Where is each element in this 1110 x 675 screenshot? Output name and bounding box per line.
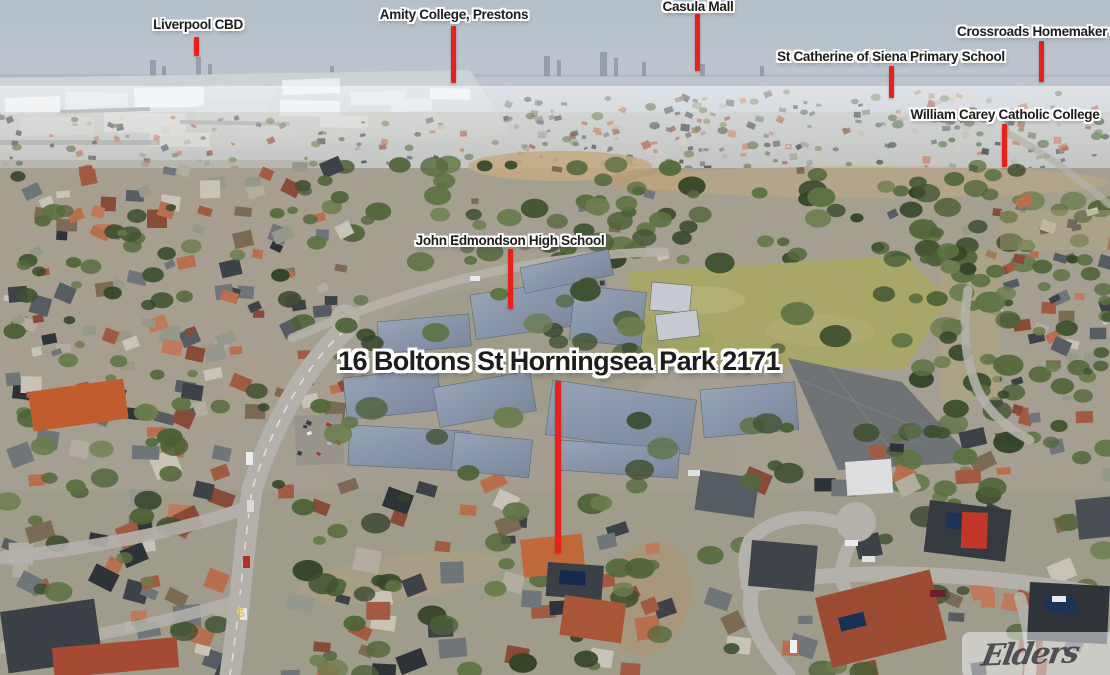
landmark-john-edmondson-high-school: John Edmondson High School — [416, 233, 605, 248]
pointer-line-crossroads-homemaker-centre — [1039, 41, 1044, 82]
landmark-liverpool-cbd: Liverpool CBD — [153, 17, 243, 32]
property-pointer-line — [555, 381, 561, 553]
pointer-line-st-catherine-of-siena-primary-school — [889, 66, 894, 98]
aerial-photo: 40 Liverpool CBD Amity College, Prestons… — [0, 0, 1110, 675]
property-address-title: 16 Boltons St Horningsea Park 2171 — [338, 346, 780, 377]
aerial-photo-art: 40 — [0, 0, 1110, 675]
agency-watermark: Elders — [962, 632, 1110, 675]
landmark-casula-mall: Casula Mall — [663, 0, 734, 14]
pointer-line-john-edmondson-high-school — [508, 249, 513, 309]
agency-watermark-text: Elders — [979, 638, 1080, 671]
pointer-line-william-carey-catholic-college — [1002, 124, 1007, 167]
pointer-line-amity-college-prestons — [451, 26, 456, 83]
pointer-line-casula-mall — [695, 14, 700, 71]
pointer-line-liverpool-cbd — [194, 37, 199, 56]
landmark-crossroads-homemaker-centre: Crossroads Homemaker Cen — [957, 24, 1110, 39]
landmark-amity-college-prestons: Amity College, Prestons — [380, 7, 528, 22]
landmark-st-catherine-of-siena-primary-school: St Catherine of Siena Primary School — [777, 49, 1005, 64]
landmark-william-carey-catholic-college: William Carey Catholic College — [911, 107, 1100, 122]
